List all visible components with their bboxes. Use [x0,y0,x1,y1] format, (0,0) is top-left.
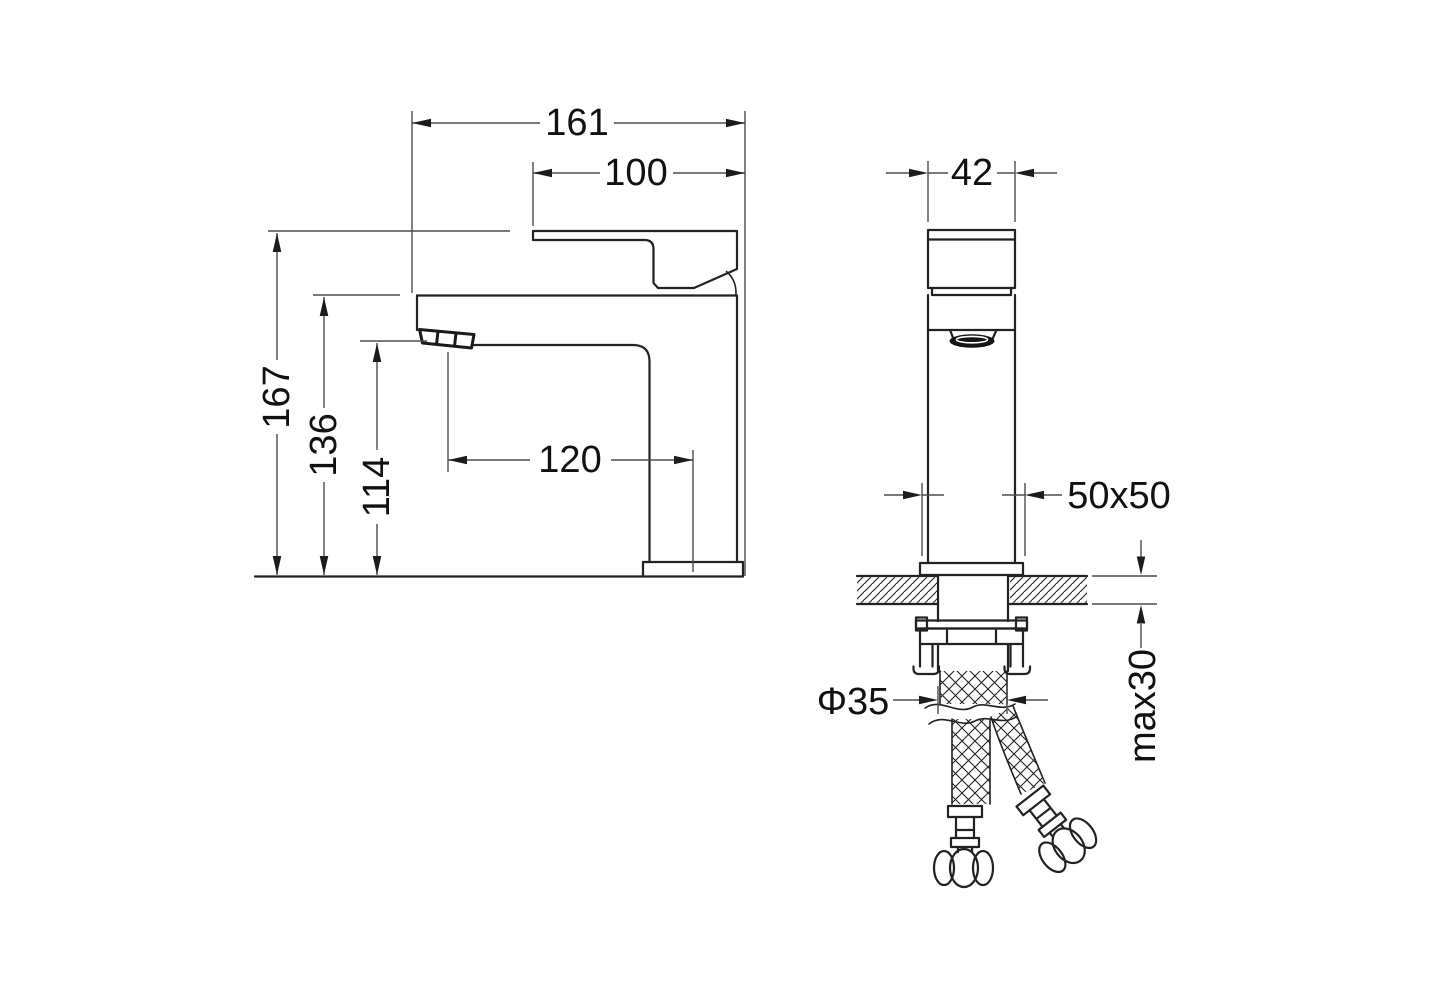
side-lever-outline [533,231,737,288]
shank [938,576,1008,621]
front-base-plate [920,563,1023,575]
dim-body-width-label: 42 [951,152,993,194]
front-view [857,230,1103,887]
side-view-dimensions: 161 100 167 136 114 120 [256,102,745,576]
lever-swing-arc [727,272,737,295]
locknut-band [920,629,1023,645]
dim-spout-reach-label: 120 [538,439,601,481]
hose-left-braid [952,719,990,804]
faucet-technical-drawing: 161 100 167 136 114 120 [0,0,1430,1000]
dim-overall-width-label: 161 [545,102,608,144]
counter-hatch-left [857,577,937,603]
dim-shank-diameter-label: Φ35 [817,681,890,723]
dim-counter-thickness-label: max30 [1122,649,1164,763]
counter-hatch-right [1010,577,1087,603]
technical-drawing-page: 161 100 167 136 114 120 [0,0,1430,1000]
front-cap [928,230,1015,288]
dim-handle-width-label: 100 [604,152,667,194]
side-view [255,231,743,577]
side-aerator [420,330,475,349]
dim-outlet-height-label: 114 [356,457,398,518]
locknut-ears [920,644,1023,671]
locknut-foot-left [914,667,940,675]
hose-left-fitting [934,806,993,887]
hose-bundle-braid [940,671,1007,704]
dim-total-height-label: 167 [256,365,298,428]
dim-base-footprint-label: 50x50 [1067,475,1171,517]
dim-spout-top-height-label: 136 [303,413,345,476]
washer-plate [916,621,1027,629]
